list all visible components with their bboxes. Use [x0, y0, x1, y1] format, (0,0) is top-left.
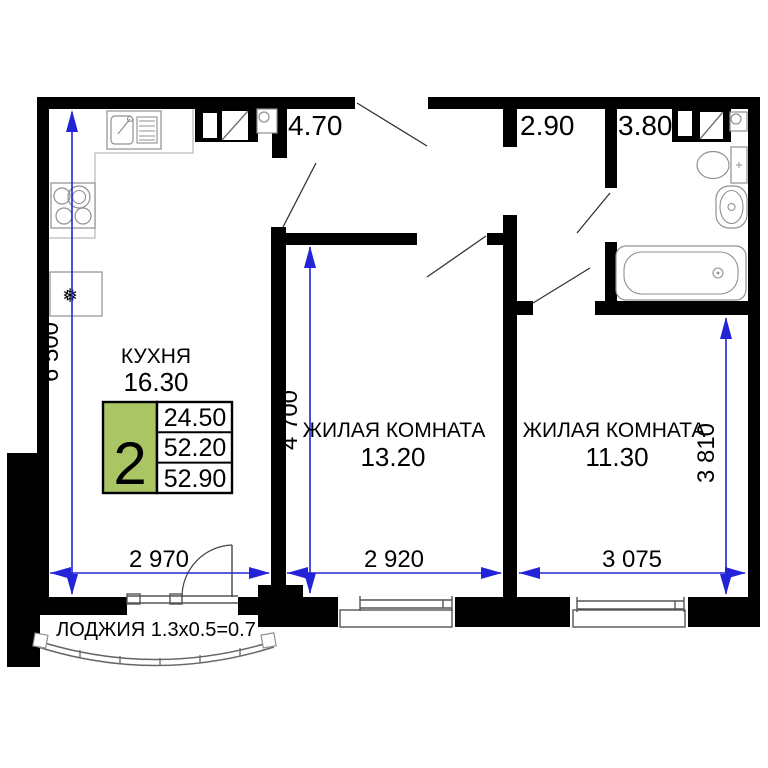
dim-arrow-2970-left [50, 567, 71, 579]
wall-bottom-right-corner [688, 597, 760, 627]
wall-right [748, 97, 760, 627]
room1-name-label: ЖИЛАЯ КОМНАТА [303, 419, 486, 442]
walls [7, 97, 760, 667]
wall-bottom-between-windows [455, 597, 570, 627]
room1-window-opening [338, 597, 455, 627]
labels: 4.70 2.90 3.80 КУХНЯ 16.30 ЖИЛАЯ КОМНАТА… [37, 110, 720, 641]
dim-arrow-3810-top [720, 317, 732, 339]
dim-text-kitchen-height: 6 500 [37, 322, 64, 382]
room1-area-label: 13.20 [360, 442, 425, 472]
room2-name-label: ЖИЛАЯ КОМНАТА [523, 419, 706, 442]
entrance-door-slash [357, 103, 427, 146]
wall-room2-top-stub [517, 301, 533, 315]
room2-area-label: 11.30 [585, 442, 648, 472]
kitchen-name-label: КУХНЯ [121, 345, 191, 368]
room2-door-slash [533, 268, 590, 303]
dim-arrow-2920-right [481, 567, 502, 579]
wall-bathroom-left-lower [605, 242, 617, 301]
dim-text-room1-height: 4 700 [276, 390, 303, 450]
hall-area-label: 4.70 [288, 110, 343, 141]
wall-top-left [37, 97, 355, 109]
loggia-rail-end-right [261, 633, 276, 648]
dim-text-room2-width: 3 075 [602, 546, 662, 573]
balcony-door-swing-arc [182, 545, 232, 597]
wall-bottom-room1-corner [258, 585, 303, 627]
bathtub [616, 246, 746, 300]
dim-arrow-2920-left [287, 567, 308, 579]
loggia-label: ЛОДЖИЯ 1.3x0.5=0.7 [56, 619, 256, 641]
kitchen-area-label: 16.30 [123, 367, 188, 397]
badge-total-area-with-loggia: 52.90 [164, 465, 227, 493]
area-summary-badge: 2 24.50 52.20 52.90 [103, 402, 232, 497]
wall-bottom-room1-left [303, 597, 338, 627]
dim-arrow-3075-right [725, 567, 746, 579]
bathroom-door-slash [577, 193, 610, 233]
corridor-area-label: 2.90 [520, 110, 575, 141]
kitchen-door-slash [283, 163, 316, 227]
wall-room1-top [286, 233, 417, 245]
dim-arrow-4700-top [304, 246, 316, 268]
dim-arrow-6500-top [66, 110, 78, 132]
wall-bathroom-left-upper [605, 109, 617, 188]
toilet-bowl [697, 152, 729, 179]
dim-text-kitchen-width: 2 970 [129, 546, 189, 573]
wall-room1-top-stub [487, 233, 503, 245]
dim-text-room2-height: 3 810 [693, 423, 720, 483]
dim-arrow-3075-left [519, 567, 540, 579]
floor-plan: ❅ [0, 0, 768, 768]
badge-total-area: 52.20 [164, 434, 227, 462]
wall-bottom-kitchen-left [37, 597, 127, 615]
dim-text-room1-width: 2 920 [364, 546, 424, 573]
badge-living-area: 24.50 [164, 404, 227, 432]
wall-divider-upper [503, 109, 517, 147]
loggia-rail-posts [80, 648, 240, 666]
bathroom-area-label: 3.80 [618, 110, 673, 141]
vent-shaft-3 [678, 111, 692, 136]
dim-arrow-2970-right [249, 567, 270, 579]
kitchen-fixtures: ❅ [49, 109, 193, 316]
wall-divider-lower [503, 215, 517, 597]
bathroom-sink [716, 186, 747, 228]
room1-door-slash [427, 236, 486, 277]
wall-top-right [428, 97, 760, 109]
badge-rooms-count: 2 [113, 430, 146, 497]
vent-shaft-1 [203, 113, 217, 138]
bathtub-drain-dot [717, 272, 720, 275]
bathroom-fixtures [616, 147, 747, 300]
fridge-snowflake-icon: ❅ [62, 286, 78, 307]
loggia-rail-end-left [33, 633, 48, 648]
floor-plan-svg: ❅ [0, 0, 768, 768]
wall-bathroom-bottom [595, 301, 760, 315]
